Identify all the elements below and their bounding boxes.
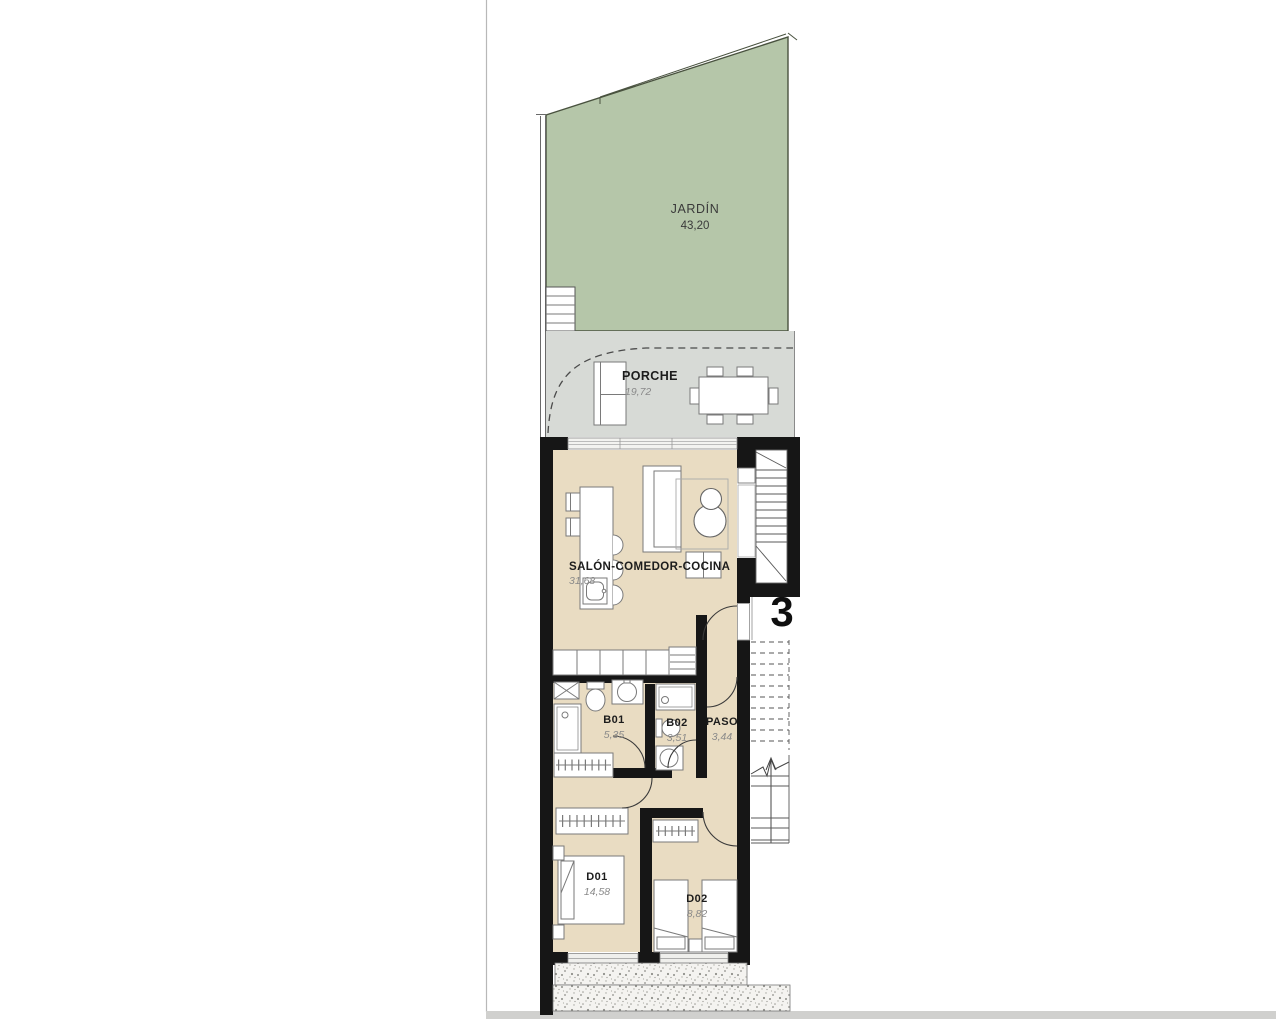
exterior-stair: [751, 640, 789, 843]
shower-b02: [656, 684, 695, 710]
room-label-b02: B02 3,51: [661, 717, 693, 745]
sink-b01: [612, 680, 643, 704]
terrace-stipple: [553, 963, 790, 1011]
room-label-porche: PORCHE 19,72: [622, 369, 712, 399]
up-arrow: [766, 758, 776, 843]
entry-door-leaf: [738, 604, 750, 641]
wardrobe-d02: [653, 820, 698, 842]
wardrobe-d01: [556, 808, 628, 834]
closet-hall: [554, 753, 613, 777]
stair-solid-steps: [751, 755, 789, 843]
garden-steps: [546, 287, 575, 331]
kitchen-counter: [553, 647, 696, 675]
living-sofa: [643, 466, 681, 552]
window-d02: [660, 954, 728, 964]
garden-left-wall: [536, 115, 546, 438]
room-label-d01: D01 14,58: [576, 871, 618, 899]
room-label-d02: D02 8,82: [676, 893, 718, 921]
room-label-paso: PASO 3,44: [702, 716, 742, 744]
washing-machine: [554, 682, 579, 699]
floor-plan-page: JARDÍN 43,20 PORCHE 19,72 SALÓN-COMEDOR-…: [0, 0, 1280, 1024]
room-label-salon: SALÓN-COMEDOR-COCINA 31,68: [569, 560, 739, 589]
room-label-jardin: JARDÍN 43,20: [645, 202, 745, 233]
stair-hidden-dashed: [751, 640, 789, 750]
unit-number: 3: [757, 588, 807, 636]
room-label-b01: B01 5,35: [594, 714, 634, 742]
toilet-b01: [586, 682, 605, 711]
sliding-window-top: [568, 438, 737, 449]
floor-plan-canvas: [0, 0, 1280, 1024]
nightstand: [689, 939, 702, 952]
nightstand: [553, 925, 564, 939]
shower-b01: [554, 704, 581, 753]
window-d01: [568, 954, 638, 964]
nightstand: [553, 846, 564, 860]
